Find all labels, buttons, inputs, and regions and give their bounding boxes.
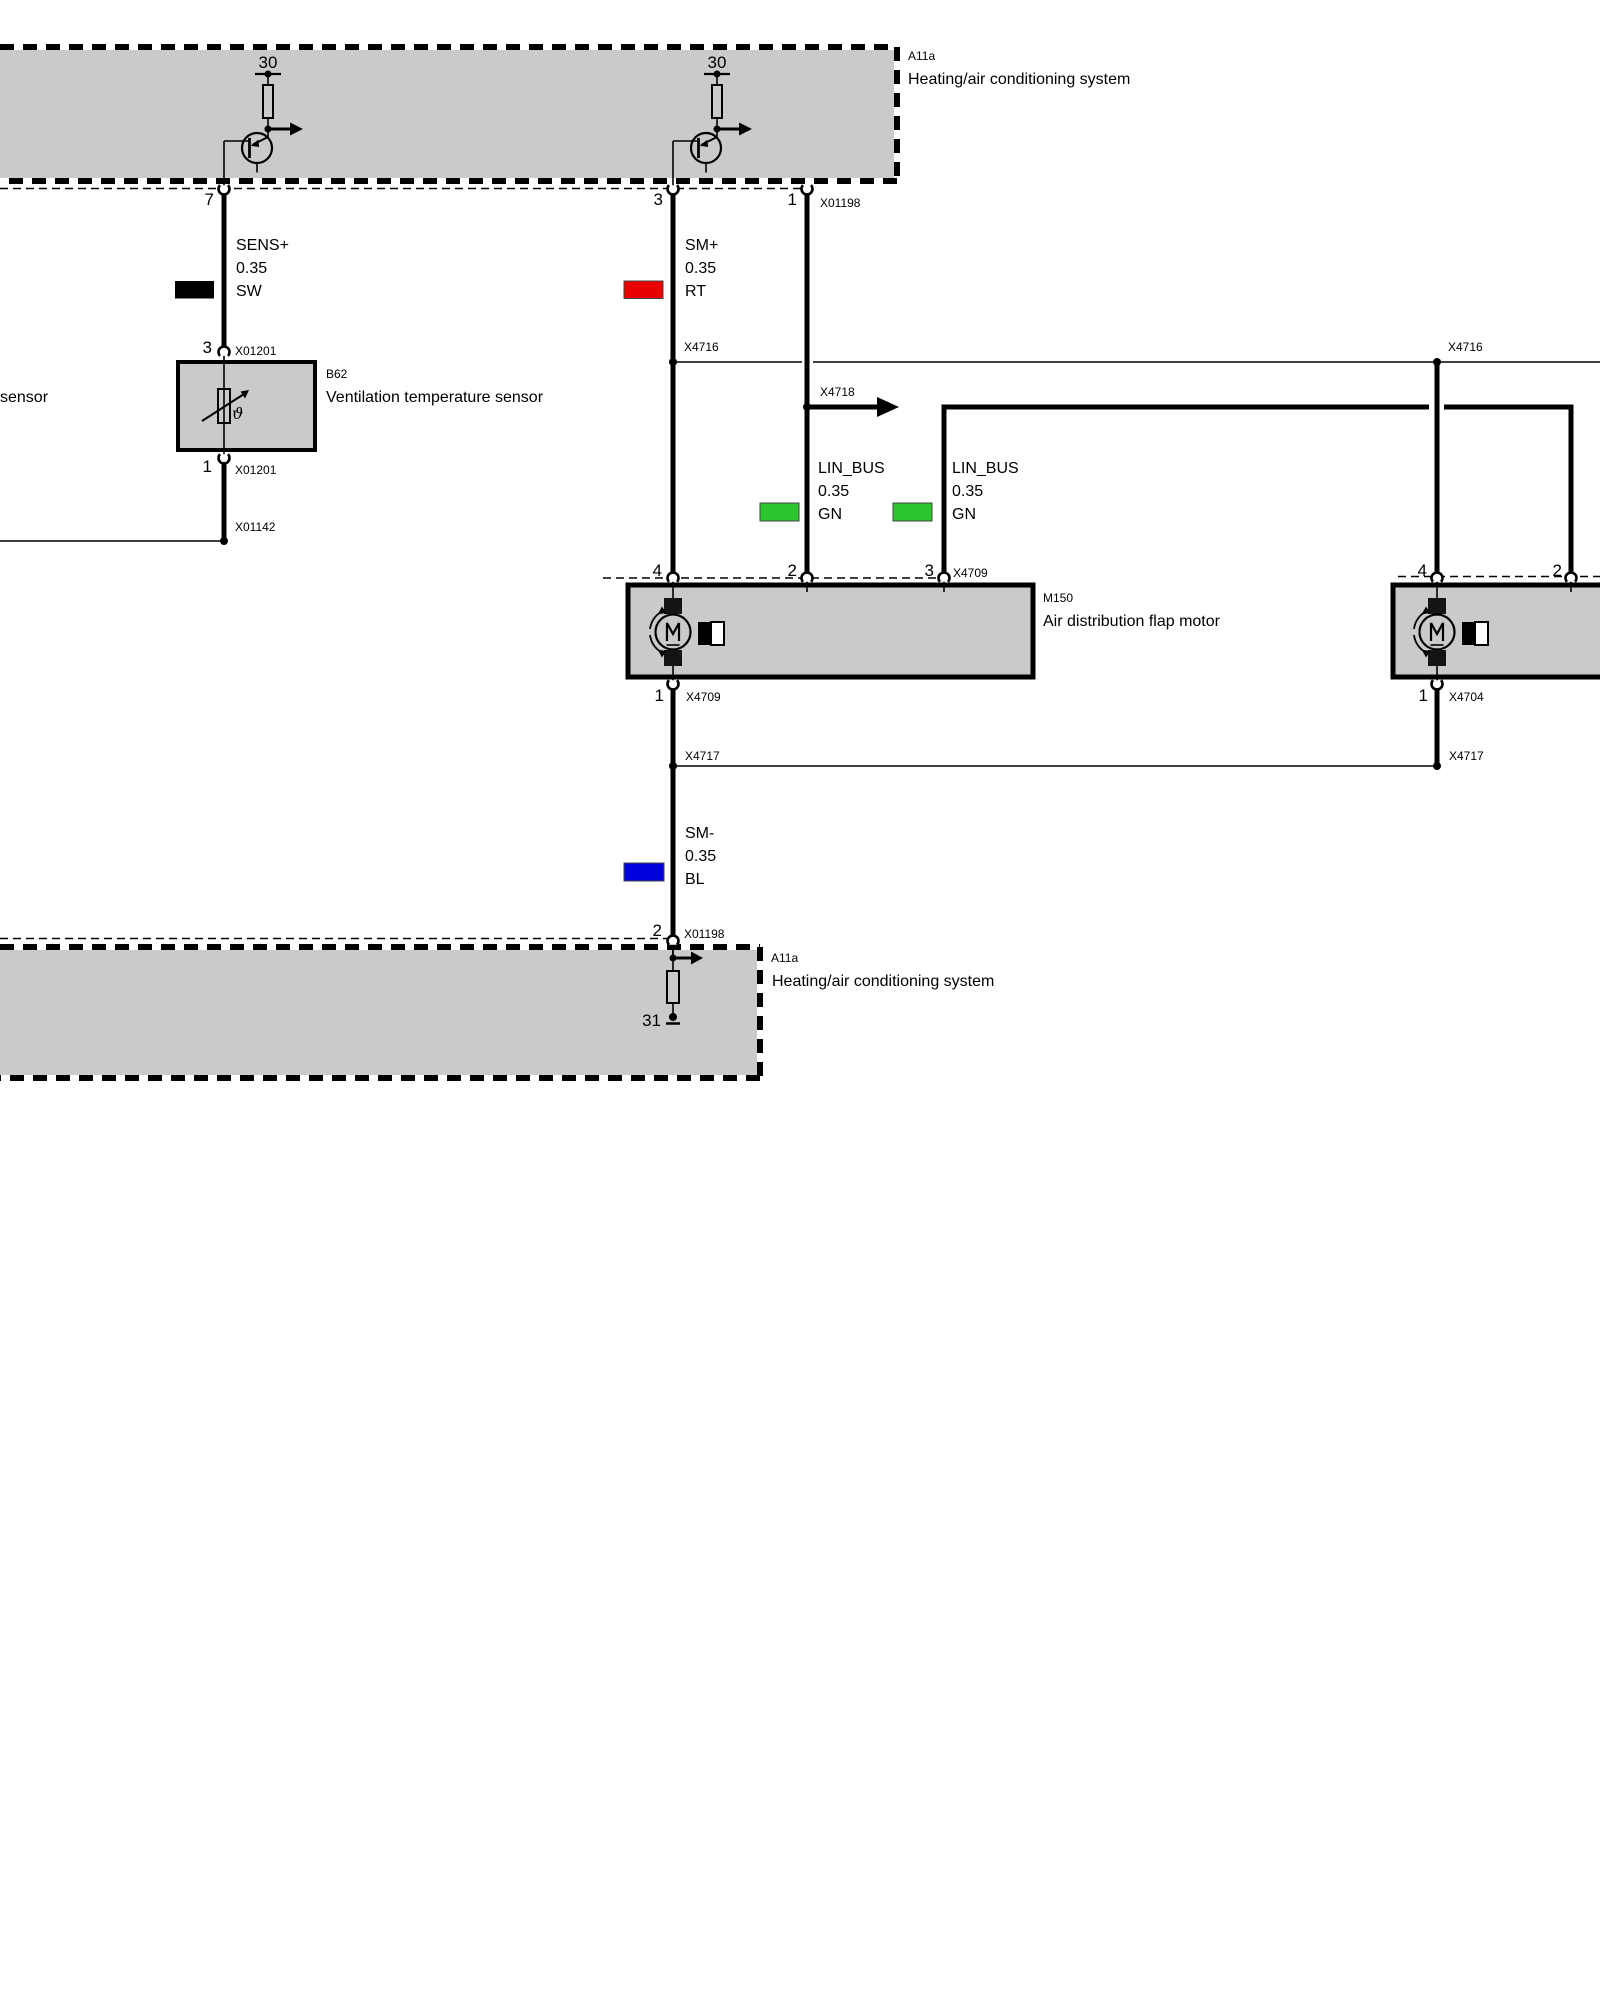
ventilation-temperature-sensor-box (178, 362, 315, 450)
wire-sens-plus-size: 0.35 (236, 260, 267, 277)
wire-lin-left-signal: LIN_BUS (818, 460, 885, 477)
wire-lin-left-color: GN (818, 506, 842, 523)
right-motor-pin-2-label: 2 (1553, 561, 1562, 580)
connector-x01201-top-label: X01201 (235, 344, 277, 358)
wire-lin-left-size: 0.35 (818, 483, 849, 500)
wire-sm-minus-signal: SM- (685, 825, 714, 842)
connector-x01198-bottom-label: X01198 (684, 927, 725, 941)
wire-sm-plus-color: RT (685, 283, 706, 300)
right-motor-pin-4-label: 4 (1418, 561, 1427, 580)
wire-sens-plus-color: SW (236, 283, 263, 300)
terminal-30-right-label: 30 (708, 53, 727, 72)
top-box-code: A11a (908, 49, 935, 63)
top-box-title: Heating/air conditioning system (908, 71, 1130, 88)
wire-sm-plus-size: 0.35 (685, 260, 716, 277)
bottom-box-code: A11a (771, 951, 798, 965)
connector-x4716-left-label: X4716 (684, 340, 719, 354)
x4718-arrow (809, 397, 899, 417)
sensor-box-title: Ventilation temperature sensor (326, 389, 544, 406)
wire-lin-right-color: GN (952, 506, 976, 523)
bottom-pin-2-label: 2 (653, 921, 662, 940)
connector-x4718-label: X4718 (820, 385, 855, 399)
sensor-box-code: B62 (326, 367, 348, 381)
connector-x4709-top-label: X4709 (953, 566, 988, 580)
connector-x4709-bottom-label: X4709 (686, 690, 721, 704)
wires (224, 194, 1571, 936)
wire-color-swatch-sw (175, 281, 214, 299)
right-motor-pin-1-label: 1 (1419, 686, 1428, 705)
theta-symbol: ϑ (232, 404, 243, 423)
terminal-31-label: 31 (642, 1011, 661, 1030)
terminal-30-left-label: 30 (259, 53, 278, 72)
wire-lin-right-size: 0.35 (952, 483, 983, 500)
wire-sens-plus-signal: SENS+ (236, 237, 289, 254)
connector-x4704-label: X4704 (1449, 690, 1484, 704)
pin-7-label: 7 (205, 190, 214, 209)
air-distribution-flap-motor-box (628, 585, 1033, 677)
motor-pin-2-label: 2 (788, 561, 797, 580)
wire-color-swatch-gn-left (760, 503, 799, 521)
wire-sm-plus-signal: SM+ (685, 237, 718, 254)
connector-x01201-bottom-label: X01201 (235, 463, 277, 477)
left-clipped-label: sensor (0, 389, 49, 406)
motor-pin-4-label: 4 (653, 561, 662, 580)
wire-sm-minus-color: BL (685, 871, 705, 888)
connector-notches (219, 185, 1577, 945)
motor-box-title: Air distribution flap motor (1043, 613, 1221, 630)
bottom-box-title: Heating/air conditioning system (772, 973, 994, 990)
wire-color-swatch-rt (624, 281, 663, 299)
right-flap-motor-box (1393, 585, 1600, 677)
motor-pin-1-label: 1 (655, 686, 664, 705)
connector-x4717-left-label: X4717 (685, 749, 720, 763)
pin-3-label: 3 (654, 190, 663, 209)
hvac-ecu-box-top (0, 50, 894, 178)
sensor-pin-3-label: 3 (203, 338, 212, 357)
sensor-pin-1-label: 1 (203, 457, 212, 476)
pin-1-label: 1 (788, 190, 797, 209)
wire-sm-minus-size: 0.35 (685, 848, 716, 865)
wire-lin-right-signal: LIN_BUS (952, 460, 1019, 477)
motor-box-code: M150 (1043, 591, 1073, 605)
connector-x4716-right-label: X4716 (1448, 340, 1483, 354)
motor-pin-3-label: 3 (925, 561, 934, 580)
junction-dots (220, 358, 1441, 770)
wiring-diagram: 30 30 (0, 0, 1600, 2000)
splice-x01142-label: X01142 (235, 520, 276, 534)
connector-x01198-top-label: X01198 (820, 196, 861, 210)
wiring-diagram-page: 30 30 (0, 0, 1600, 2000)
wire-color-swatch-gn-right (893, 503, 932, 521)
connector-x4717-right-label: X4717 (1449, 749, 1484, 763)
wire-color-swatch-bl (624, 863, 664, 881)
